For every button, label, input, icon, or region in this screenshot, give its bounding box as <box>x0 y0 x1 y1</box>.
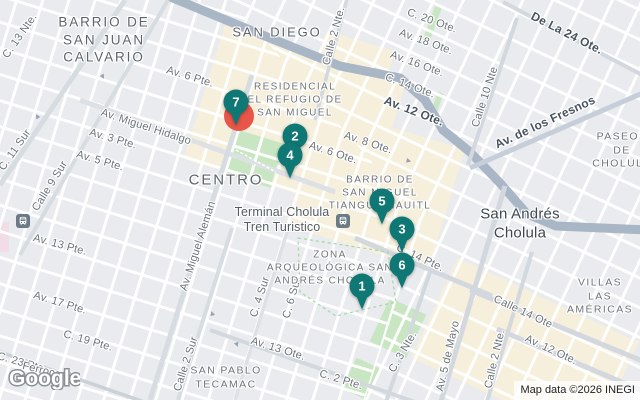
map-marker-3[interactable]: 3 <box>390 217 415 242</box>
map-canvas[interactable]: C. 13 Nte.C. 11 SurCalle 9 SurAv. 6 Pte.… <box>0 0 640 400</box>
area-label: SAN PABLO TECAMAC <box>190 364 261 391</box>
google-logo[interactable]: Google <box>8 366 80 395</box>
train-station-icon[interactable] <box>336 214 350 228</box>
area-label: ZONA ARQUEOLÓGICA SAN ANDRÉS CHOLULA <box>267 249 393 288</box>
city-label: San Andrés Cholula <box>480 205 560 243</box>
area-label: BARRIO DE SAN JUAN CALVARIO <box>58 14 149 67</box>
map-marker-6[interactable]: 6 <box>390 253 415 278</box>
map-marker-1[interactable]: 1 <box>350 274 375 299</box>
map-attribution: Map data ©2026 INEGI <box>514 381 640 400</box>
poi-label: Terminal Cholula Tren Turistico <box>235 205 330 235</box>
map-marker-7[interactable]: 7 <box>224 90 249 115</box>
area-label: RESIDENCIAL EL REFUGIO DE SAN MIGUEL <box>247 81 342 120</box>
area-label: PASEOS DE CHOLULA <box>592 131 640 172</box>
train-station-icon[interactable] <box>16 214 30 228</box>
area-label: SAN DIEGO <box>232 25 321 42</box>
area-label: CENTRO <box>189 170 264 190</box>
area-label: VILLAS LAS AMÉRICAS <box>567 277 633 318</box>
map-marker-5[interactable]: 5 <box>370 189 395 214</box>
map-marker-4[interactable]: 4 <box>278 143 303 168</box>
google-logo-text: Google <box>9 367 80 390</box>
